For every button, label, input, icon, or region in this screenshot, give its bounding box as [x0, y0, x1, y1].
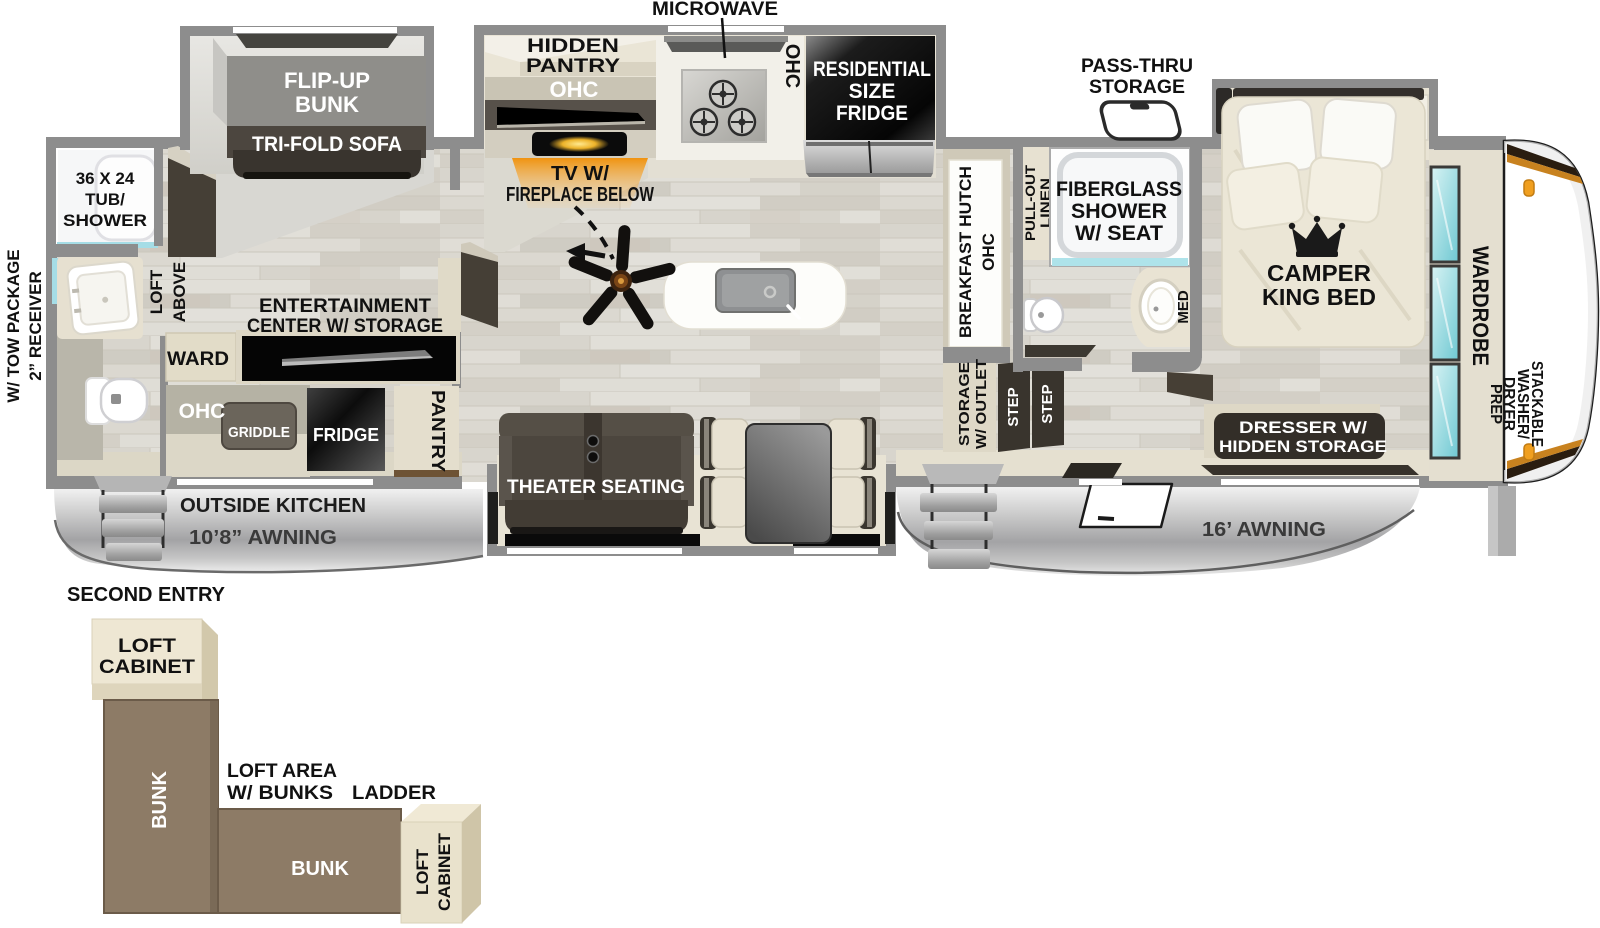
- svg-text:SIZE: SIZE: [849, 80, 896, 103]
- svg-text:STEP: STEP: [1005, 387, 1022, 426]
- svg-text:10’8” AWNING: 10’8” AWNING: [189, 527, 337, 549]
- svg-text:SECOND ENTRY: SECOND ENTRY: [67, 584, 226, 606]
- svg-text:BREAKFAST HUTCH: BREAKFAST HUTCH: [957, 166, 975, 338]
- svg-text:16’ AWNING: 16’ AWNING: [1202, 519, 1326, 541]
- svg-text:W/ SEAT: W/ SEAT: [1075, 222, 1163, 245]
- svg-text:ENTERTAINMENT: ENTERTAINMENT: [259, 296, 431, 317]
- svg-text:FIREPLACE BELOW: FIREPLACE BELOW: [506, 184, 654, 206]
- svg-text:FRIDGE: FRIDGE: [313, 425, 379, 445]
- svg-text:HIDDEN: HIDDEN: [527, 36, 619, 57]
- svg-text:CAMPER: CAMPER: [1267, 260, 1371, 286]
- svg-text:W/ TOW PACKAGE: W/ TOW PACKAGE: [4, 249, 23, 402]
- svg-text:PASS-THRU: PASS-THRU: [1081, 56, 1193, 77]
- svg-text:LOFT: LOFT: [118, 636, 176, 657]
- svg-text:KING BED: KING BED: [1262, 284, 1376, 310]
- svg-text:DRESSER W/: DRESSER W/: [1239, 418, 1367, 437]
- svg-text:BUNK: BUNK: [149, 771, 171, 829]
- svg-text:RESIDENTIAL: RESIDENTIAL: [813, 58, 931, 81]
- svg-text:PANTRY: PANTRY: [526, 56, 620, 77]
- svg-text:ABOVE: ABOVE: [170, 262, 189, 322]
- svg-text:MICROWAVE: MICROWAVE: [652, 0, 778, 20]
- svg-text:TRI-FOLD SOFA: TRI-FOLD SOFA: [252, 133, 402, 156]
- svg-text:PREP: PREP: [1487, 384, 1504, 424]
- svg-text:HIDDEN STORAGE: HIDDEN STORAGE: [1219, 437, 1387, 456]
- svg-text:CABINET: CABINET: [435, 832, 454, 911]
- svg-text:WARD: WARD: [167, 349, 229, 370]
- svg-text:W/ BUNKS: W/ BUNKS: [227, 783, 333, 804]
- svg-text:STORAGE: STORAGE: [957, 362, 973, 446]
- svg-text:PANTRY: PANTRY: [428, 390, 448, 472]
- svg-text:WARDROBE: WARDROBE: [1468, 246, 1493, 366]
- svg-text:LOFT: LOFT: [147, 269, 166, 314]
- svg-text:THEATER SEATING: THEATER SEATING: [507, 477, 685, 498]
- svg-text:STEP: STEP: [1039, 384, 1056, 423]
- svg-text:PULL-OUT: PULL-OUT: [1022, 165, 1038, 241]
- svg-text:FIBERGLASS: FIBERGLASS: [1056, 178, 1182, 201]
- svg-text:GRIDDLE: GRIDDLE: [228, 424, 290, 441]
- svg-text:2” RECEIVER: 2” RECEIVER: [26, 271, 45, 381]
- svg-text:SHOWER: SHOWER: [63, 211, 147, 230]
- svg-text:FRIDGE: FRIDGE: [836, 102, 908, 125]
- svg-text:SHOWER: SHOWER: [1071, 200, 1167, 223]
- svg-text:CENTER W/ STORAGE: CENTER W/ STORAGE: [247, 316, 443, 337]
- svg-text:OUTSIDE KITCHEN: OUTSIDE KITCHEN: [180, 495, 366, 517]
- svg-text:TUB/: TUB/: [85, 190, 125, 209]
- svg-text:LOFT: LOFT: [413, 848, 432, 895]
- svg-text:OHC: OHC: [781, 44, 803, 88]
- svg-text:FLIP-UP: FLIP-UP: [284, 68, 370, 93]
- svg-text:OHC: OHC: [179, 400, 226, 423]
- svg-text:OHC: OHC: [979, 233, 998, 271]
- svg-text:CABINET: CABINET: [99, 657, 195, 678]
- svg-text:BUNK: BUNK: [291, 858, 349, 880]
- svg-text:BUNK: BUNK: [295, 92, 359, 117]
- svg-text:OHC: OHC: [550, 77, 599, 102]
- svg-text:W/ OUTLET: W/ OUTLET: [974, 359, 990, 449]
- svg-text:LOFT AREA: LOFT AREA: [227, 761, 337, 782]
- svg-text:LADDER: LADDER: [352, 783, 436, 804]
- svg-text:36 X 24: 36 X 24: [76, 169, 135, 188]
- svg-text:TV W/: TV W/: [551, 163, 609, 185]
- svg-text:MED: MED: [1175, 290, 1192, 324]
- svg-text:STORAGE: STORAGE: [1089, 77, 1185, 98]
